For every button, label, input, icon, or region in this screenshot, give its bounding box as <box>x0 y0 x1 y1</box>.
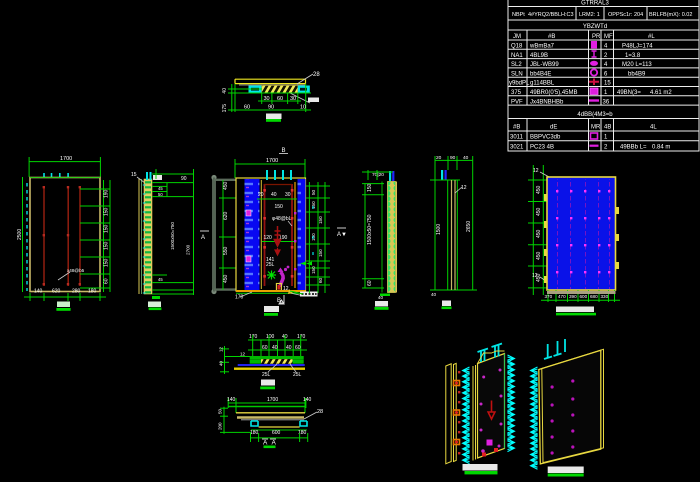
svg-text:45: 45 <box>158 277 163 282</box>
svg-text:470: 470 <box>558 294 566 299</box>
svg-text:1500x50=750: 1500x50=750 <box>367 214 373 245</box>
svg-text:120: 120 <box>264 235 273 241</box>
svg-text:SL2: SL2 <box>511 62 522 68</box>
svg-text:bb4B4E: bb4B4E <box>530 71 551 77</box>
svg-text:450: 450 <box>536 229 542 238</box>
svg-text:375: 375 <box>511 90 522 96</box>
svg-text:60: 60 <box>104 278 110 284</box>
svg-text:40: 40 <box>378 295 384 300</box>
svg-text:600: 600 <box>580 294 588 299</box>
svg-text:60: 60 <box>262 345 268 351</box>
svg-text:M20 L=113: M20 L=113 <box>622 62 652 68</box>
svg-text:60: 60 <box>277 96 283 102</box>
svg-text:600: 600 <box>272 430 281 436</box>
svg-text:Q18: Q18 <box>511 44 523 50</box>
svg-text:390: 390 <box>569 294 577 299</box>
svg-text:BRLFB(mX): 0.02: BRLFB(mX): 0.02 <box>649 12 692 18</box>
svg-text:60: 60 <box>318 277 323 283</box>
svg-text:1700: 1700 <box>60 156 72 162</box>
svg-text:150: 150 <box>104 224 110 233</box>
svg-text:450: 450 <box>536 251 542 260</box>
svg-text:1700: 1700 <box>266 158 278 164</box>
svg-text:620: 620 <box>223 211 229 220</box>
svg-text:450: 450 <box>536 207 542 216</box>
svg-text:15: 15 <box>131 172 137 178</box>
svg-text:1500x50=750: 1500x50=750 <box>170 222 175 250</box>
svg-text:#L: #L <box>648 34 655 40</box>
svg-text:450: 450 <box>536 185 542 194</box>
svg-text:40: 40 <box>222 88 228 94</box>
svg-text:4B: 4B <box>604 125 611 131</box>
svg-text:LRM2: 1: LRM2: 1 <box>579 12 600 18</box>
svg-text:90: 90 <box>268 105 274 111</box>
svg-text:3011: 3011 <box>510 135 524 141</box>
svg-text:12: 12 <box>532 273 538 279</box>
svg-text:330: 330 <box>601 294 609 299</box>
svg-text:40: 40 <box>271 192 277 198</box>
svg-text:150: 150 <box>275 204 284 210</box>
svg-text:90: 90 <box>450 155 456 161</box>
svg-text:dE: dE <box>550 125 557 131</box>
svg-text:12: 12 <box>533 168 539 174</box>
svg-text:12: 12 <box>461 185 467 191</box>
svg-text:SLN: SLN <box>511 71 523 77</box>
svg-text:3021: 3021 <box>510 145 524 151</box>
svg-text:A: A <box>201 235 205 241</box>
svg-text:Jx4BNBHBb: Jx4BNBHBb <box>530 99 564 105</box>
svg-text:bb4B9: bb4B9 <box>628 71 646 77</box>
svg-text:y9bdPL: y9bdPL <box>509 81 530 87</box>
svg-text:150: 150 <box>311 266 316 274</box>
svg-text:15: 15 <box>604 81 611 87</box>
svg-text:2650: 2650 <box>466 221 472 232</box>
svg-text:30: 30 <box>285 192 291 198</box>
svg-text:1=3.8: 1=3.8 <box>625 53 641 59</box>
svg-text:180: 180 <box>88 289 97 295</box>
svg-text:MR: MR <box>591 125 601 131</box>
svg-text:370: 370 <box>545 294 553 299</box>
svg-text:PC23 4B: PC23 4B <box>530 145 554 151</box>
svg-text:40: 40 <box>272 345 278 351</box>
svg-text:40: 40 <box>286 345 292 351</box>
svg-text:150: 150 <box>318 216 323 224</box>
svg-text:49BR0(0'5),45MB: 49BR0(0'5),45MB <box>530 90 578 96</box>
svg-text:PVF: PVF <box>511 99 523 105</box>
svg-text:10: 10 <box>300 105 306 111</box>
svg-text:4dBB(4M3=b: 4dBB(4M3=b <box>577 112 613 118</box>
svg-text:140: 140 <box>303 397 312 403</box>
svg-text:φ48@bL: φ48@bL <box>272 216 292 222</box>
svg-text:680: 680 <box>590 294 598 299</box>
svg-text:30: 30 <box>290 96 296 102</box>
svg-text:140: 140 <box>34 289 43 295</box>
svg-text:4L: 4L <box>650 125 657 131</box>
svg-text:25L: 25L <box>293 372 302 378</box>
svg-text:170: 170 <box>249 334 258 340</box>
svg-text:B: B <box>277 298 281 304</box>
svg-text:12: 12 <box>240 352 246 357</box>
svg-text:60: 60 <box>244 105 250 111</box>
svg-text:60: 60 <box>295 345 301 351</box>
svg-text:450: 450 <box>223 274 229 283</box>
svg-text:4BL9B: 4BL9B <box>530 53 548 59</box>
svg-text:4.61 m2: 4.61 m2 <box>650 90 672 96</box>
svg-text:550: 550 <box>223 246 229 255</box>
svg-text:20: 20 <box>436 155 442 161</box>
svg-text:175: 175 <box>222 104 228 113</box>
svg-text:50: 50 <box>218 408 223 414</box>
svg-text:P48LJ=174: P48LJ=174 <box>622 44 653 50</box>
svg-text:YBZWTd: YBZWTd <box>583 24 607 30</box>
svg-text:150: 150 <box>104 241 110 250</box>
svg-text:0.84 m: 0.84 m <box>652 145 670 151</box>
svg-text:4#YRQ2/BBLH:C3: 4#YRQ2/BBLH:C3 <box>528 12 574 18</box>
svg-text:OPPSc1r: 204: OPPSc1r: 204 <box>608 12 643 18</box>
svg-text:40: 40 <box>219 360 224 366</box>
svg-text:280: 280 <box>72 289 81 295</box>
svg-text:150: 150 <box>367 183 373 192</box>
svg-text:140: 140 <box>227 397 236 403</box>
svg-text:25L: 25L <box>262 372 271 378</box>
svg-text:49BN(3=: 49BN(3= <box>617 90 641 96</box>
svg-text:A▼: A▼ <box>337 232 347 238</box>
svg-text:g114BBL: g114BBL <box>530 81 555 87</box>
svg-text:60: 60 <box>367 280 373 286</box>
svg-text:150: 150 <box>104 258 110 267</box>
svg-text:36: 36 <box>603 99 610 105</box>
svg-text:450: 450 <box>223 181 229 190</box>
svg-text:90: 90 <box>181 176 187 182</box>
svg-text:wBmBa7: wBmBa7 <box>529 44 555 50</box>
svg-text:A: A <box>272 440 277 447</box>
svg-text:100: 100 <box>266 334 275 340</box>
svg-text:JM: JM <box>513 34 521 40</box>
svg-text:1500: 1500 <box>436 224 442 235</box>
svg-text:170: 170 <box>235 295 244 301</box>
svg-text:30: 30 <box>264 96 270 102</box>
svg-text:#B: #B <box>548 34 555 40</box>
svg-text:GTRRAL3: GTRRAL3 <box>581 1 609 7</box>
svg-text:MF: MF <box>604 34 613 40</box>
svg-text:170: 170 <box>297 334 306 340</box>
svg-text:150: 150 <box>318 249 323 257</box>
svg-text:JBL-WB99: JBL-WB99 <box>530 62 559 68</box>
svg-text:190: 190 <box>104 189 110 198</box>
svg-text:NA1: NA1 <box>511 53 523 59</box>
svg-text:x48@b5: x48@b5 <box>67 268 85 273</box>
svg-text:28: 28 <box>313 72 320 78</box>
svg-text:49BBb L=: 49BBb L= <box>620 145 647 151</box>
svg-text:200: 200 <box>218 422 223 430</box>
svg-text:50: 50 <box>311 189 316 195</box>
svg-text:40: 40 <box>463 155 469 161</box>
svg-text:20: 20 <box>258 192 264 198</box>
svg-text:150: 150 <box>104 207 110 216</box>
svg-text:70|20: 70|20 <box>372 172 384 178</box>
svg-text:#B: #B <box>513 125 520 131</box>
svg-text:A: A <box>263 440 268 447</box>
svg-text:2500: 2500 <box>17 229 23 240</box>
svg-text:2700: 2700 <box>186 244 191 255</box>
svg-text:12: 12 <box>219 346 224 352</box>
svg-text:1700: 1700 <box>267 397 278 403</box>
svg-text:28: 28 <box>317 409 323 415</box>
svg-text:50: 50 <box>158 192 163 197</box>
svg-text:180: 180 <box>250 430 259 436</box>
svg-text:NBPt: NBPt <box>512 12 525 18</box>
svg-text:BBPVC3db: BBPVC3db <box>530 135 561 141</box>
svg-text:45: 45 <box>158 186 163 191</box>
svg-text:40: 40 <box>431 292 437 297</box>
svg-text:25L: 25L <box>266 262 275 268</box>
svg-text:PR: PR <box>592 34 601 40</box>
svg-text:620: 620 <box>52 289 61 295</box>
